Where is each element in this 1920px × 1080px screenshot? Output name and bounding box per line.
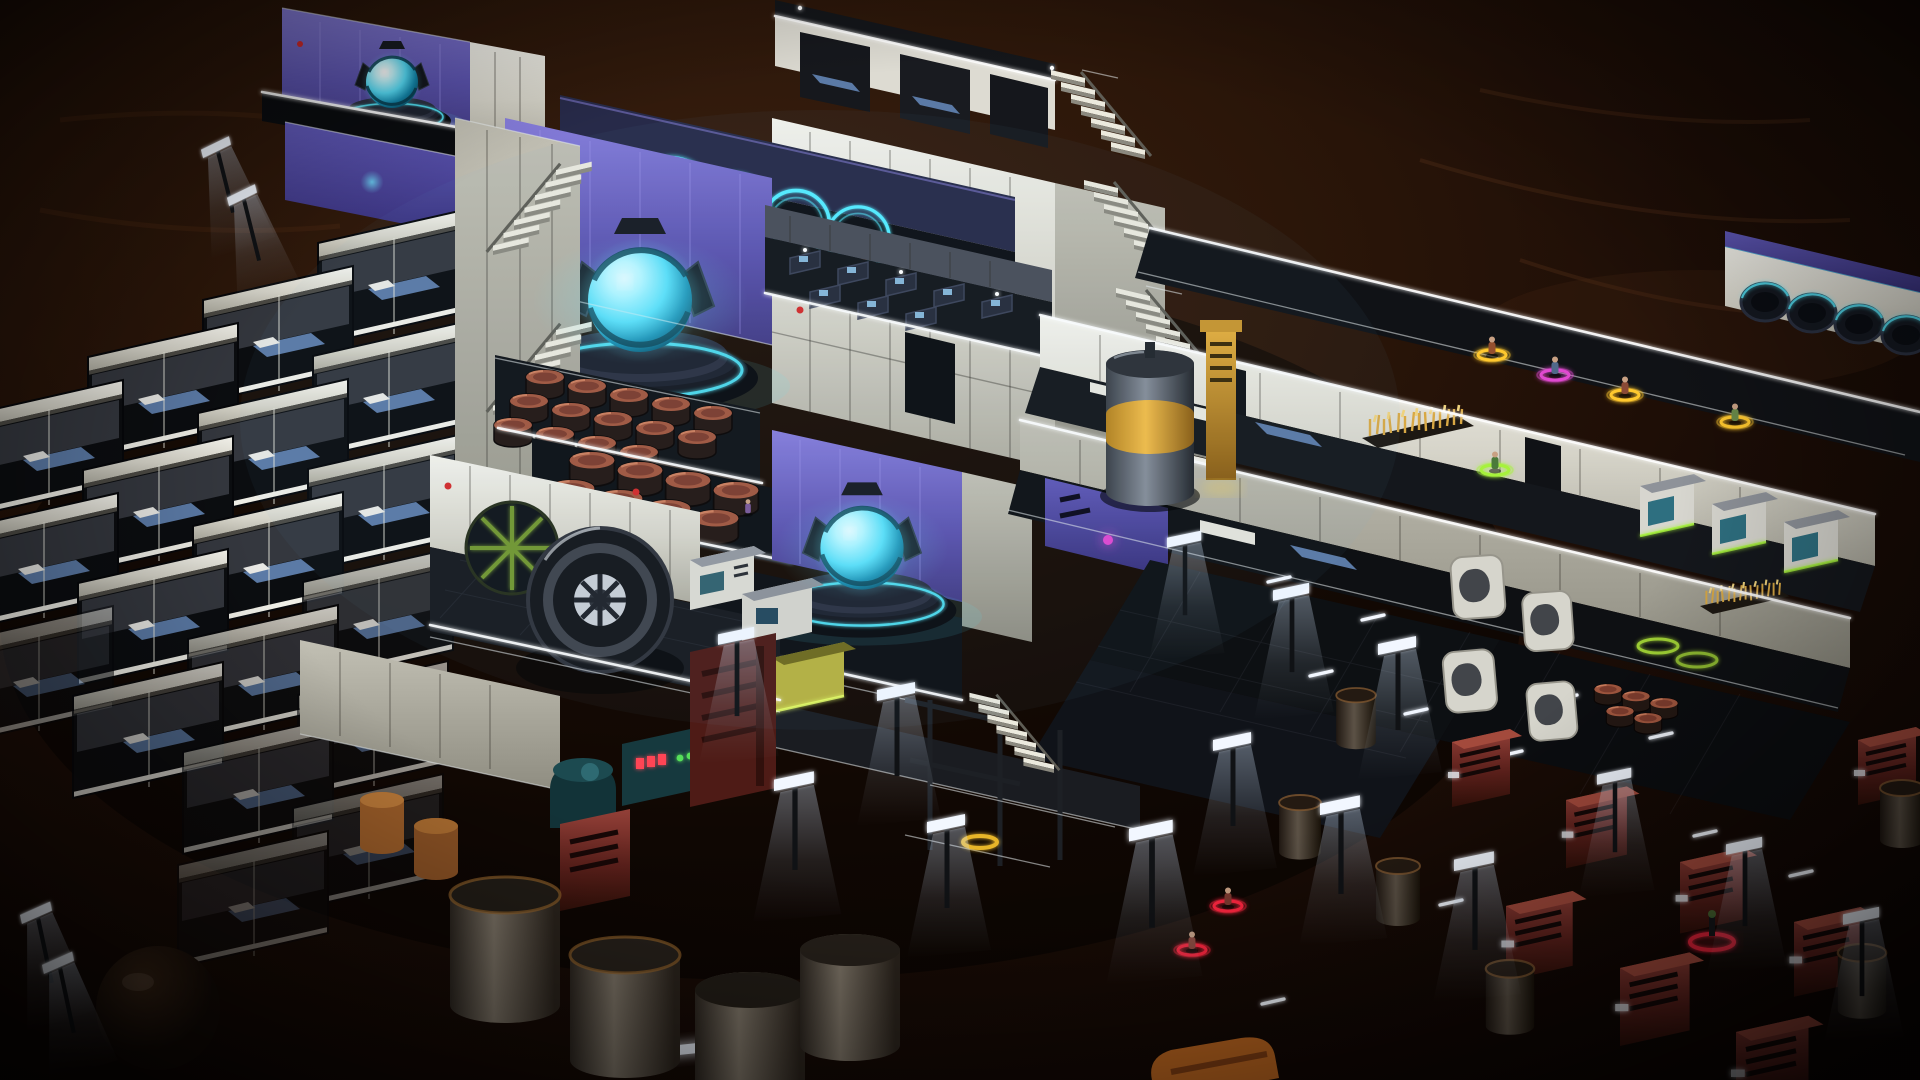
vignette — [0, 0, 1920, 1080]
game-viewport[interactable] — [0, 0, 1920, 1080]
atmosphere — [0, 0, 1920, 1080]
base-scene[interactable] — [0, 0, 1920, 1080]
